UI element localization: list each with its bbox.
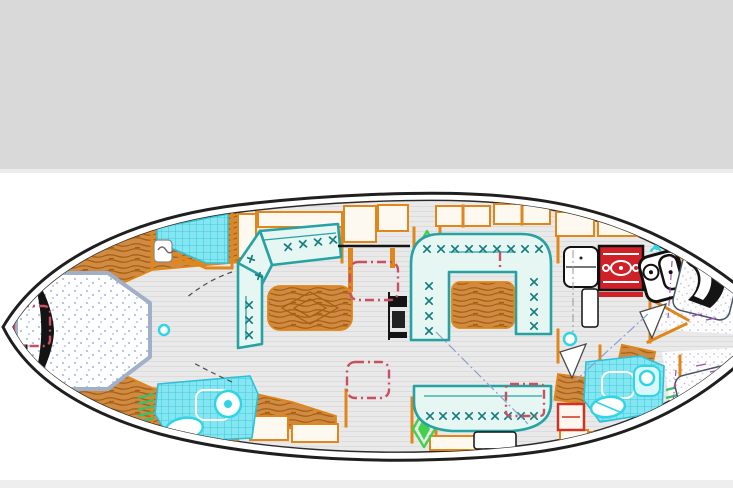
gray-header-panel <box>0 0 733 171</box>
header-divider <box>0 169 733 173</box>
aft-wood-block <box>554 374 587 404</box>
aft-bench-seat <box>414 386 551 431</box>
salon-settee-top <box>260 224 341 265</box>
helm-seat <box>474 432 516 449</box>
stove <box>599 246 643 297</box>
galley-counter <box>582 289 598 327</box>
forward-head-sink <box>154 240 172 262</box>
screenshot-canvas <box>0 0 733 488</box>
aft-head-sink <box>640 371 654 385</box>
yacht-floor-plan <box>0 0 733 488</box>
dinette <box>411 234 551 340</box>
footer-strip <box>0 480 733 488</box>
galley-knob <box>564 333 576 345</box>
corridor-knob <box>159 325 169 335</box>
dinette-table <box>452 282 514 328</box>
sink-drain <box>224 400 232 408</box>
